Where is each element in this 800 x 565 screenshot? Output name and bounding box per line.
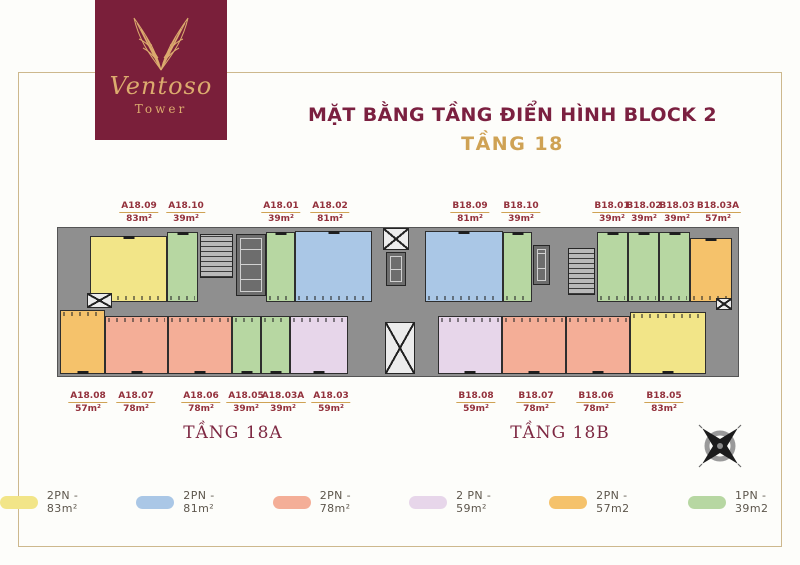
floor-title: TẦNG 18 (290, 133, 735, 155)
elevator-bank-left-icon (236, 234, 266, 296)
unit-code: A18.10 (166, 201, 205, 213)
unit-area: 59m² (311, 404, 350, 414)
unit-code: A18.08 (68, 391, 107, 403)
legend-swatch-salmon (273, 496, 311, 509)
legend-swatch-orange (549, 496, 587, 509)
unit-area: 39m² (657, 214, 696, 224)
legend-label: 2 PN - 59m² (456, 489, 522, 515)
unit-code: B18.07 (516, 391, 555, 403)
floor-plan (58, 226, 738, 378)
unit-label-B18.07: B18.0778m² (516, 383, 555, 414)
unit-code: A18.03A (260, 391, 306, 403)
top-unit-labels: A18.0983m²A18.1039m²A18.0139m²A18.0281m²… (0, 193, 800, 223)
unit-area: 59m² (456, 404, 495, 414)
unit-label-A18.03: A18.0359m² (311, 383, 350, 414)
legend-item-blue: 2PN - 81m² (136, 489, 245, 515)
legend-swatch-blue (136, 496, 174, 509)
unit-label-B18.03A: B18.03A57m² (695, 193, 741, 224)
unit-label-B18.08: B18.0859m² (456, 383, 495, 414)
unit-B18.03 (659, 232, 690, 302)
legend-label: 1PN - 39m2 (735, 489, 800, 515)
unit-area: 78m² (116, 404, 155, 414)
section-label-18b: TẦNG 18B (510, 423, 610, 443)
unit-area: 57m² (68, 404, 107, 414)
unit-label-B18.03: B18.0339m² (657, 193, 696, 224)
unit-A18.01 (266, 232, 295, 302)
unit-B18.07 (502, 316, 566, 374)
unit-code: B18.08 (456, 391, 495, 403)
page-title: MẶT BẰNG TẦNG ĐIỂN HÌNH BLOCK 2 (290, 104, 735, 126)
legend-swatch-yellow (0, 496, 38, 509)
unit-label-B18.06: B18.0678m² (576, 383, 615, 414)
legend-item-salmon: 2PN - 78m² (273, 489, 382, 515)
unit-area: 83m² (119, 214, 158, 224)
stairwell-right-icon (568, 248, 595, 295)
shaft-mid-top-icon (383, 228, 409, 250)
brand-subtitle: Tower (135, 102, 187, 116)
brand-name: Ventoso (110, 74, 213, 98)
legend-item-green: 1PN - 39m2 (688, 489, 800, 515)
unit-area: 39m² (260, 404, 306, 414)
unit-A18.08 (60, 310, 105, 374)
unit-code: A18.03 (311, 391, 350, 403)
compass-icon (690, 416, 750, 476)
title-block: MẶT BẰNG TẦNG ĐIỂN HÌNH BLOCK 2 TẦNG 18 (290, 104, 735, 155)
unit-area: 39m² (261, 214, 300, 224)
wings-icon (119, 12, 203, 72)
page: { "logo": { "brand": "Ventoso", "sub": "… (0, 0, 800, 565)
unit-label-A18.07: A18.0778m² (116, 383, 155, 414)
unit-code: A18.09 (119, 201, 158, 213)
unit-A18.05 (232, 316, 261, 374)
legend-label: 2PN - 83m² (47, 489, 109, 515)
legend-label: 2PN - 57m2 (596, 489, 661, 515)
shaft-left-icon (87, 293, 112, 308)
unit-code: A18.07 (116, 391, 155, 403)
legend-label: 2PN - 81m² (183, 489, 245, 515)
bottom-unit-labels: A18.0857m²A18.0778m²A18.0678m²A18.0539m²… (0, 383, 800, 413)
legend-swatch-green (688, 496, 726, 509)
legend-item-yellow: 2PN - 83m² (0, 489, 109, 515)
shaft-right-icon (716, 298, 732, 310)
unit-label-A18.09: A18.0983m² (119, 193, 158, 224)
unit-code: B18.06 (576, 391, 615, 403)
unit-code: A18.06 (181, 391, 220, 403)
unit-B18.09 (425, 231, 503, 302)
legend: 2PN - 83m²2PN - 81m²2PN - 78m²2 PN - 59m… (0, 489, 800, 515)
unit-area: 83m² (644, 404, 683, 414)
unit-A18.06 (168, 316, 232, 374)
unit-area: 39m² (166, 214, 205, 224)
legend-label: 2PN - 78m² (320, 489, 382, 515)
unit-area: 78m² (181, 404, 220, 414)
unit-A18.02 (295, 231, 372, 302)
unit-code: B18.09 (450, 201, 489, 213)
unit-A18.03 (290, 316, 348, 374)
unit-code: B18.03 (657, 201, 696, 213)
unit-label-B18.05: B18.0583m² (644, 383, 683, 414)
brand-logo: Ventoso Tower (95, 0, 227, 140)
unit-B18.10 (503, 232, 532, 302)
unit-A18.10 (167, 232, 198, 302)
unit-A18.07 (105, 316, 168, 374)
unit-B18.08 (438, 316, 502, 374)
section-label-18a: TẦNG 18A (183, 423, 282, 443)
unit-label-B18.09: B18.0981m² (450, 193, 489, 224)
legend-item-orange: 2PN - 57m2 (549, 489, 661, 515)
stairwell-left-icon (200, 234, 233, 278)
unit-label-A18.06: A18.0678m² (181, 383, 220, 414)
unit-area: 78m² (576, 404, 615, 414)
unit-area: 78m² (516, 404, 555, 414)
unit-code: B18.10 (501, 201, 540, 213)
unit-B18.05 (630, 312, 706, 374)
unit-code: B18.03A (695, 201, 741, 213)
legend-item-purple: 2 PN - 59m² (409, 489, 522, 515)
unit-label-B18.10: B18.1039m² (501, 193, 540, 224)
unit-B18.06 (566, 316, 630, 374)
elevator-bank-right-icon (533, 245, 550, 285)
unit-label-A18.03A: A18.03A39m² (260, 383, 306, 414)
unit-code: A18.01 (261, 201, 300, 213)
unit-B18.03A (690, 238, 732, 302)
unit-area: 57m² (695, 214, 741, 224)
unit-label-A18.10: A18.1039m² (166, 193, 205, 224)
unit-code: B18.05 (644, 391, 683, 403)
unit-area: 81m² (310, 214, 349, 224)
unit-area: 81m² (450, 214, 489, 224)
unit-B18.02 (628, 232, 659, 302)
legend-swatch-purple (409, 496, 447, 509)
unit-code: A18.02 (310, 201, 349, 213)
shaft-mid-bottom-icon (385, 322, 415, 374)
unit-label-A18.08: A18.0857m² (68, 383, 107, 414)
unit-label-A18.02: A18.0281m² (310, 193, 349, 224)
elevator-bank-mid-icon (386, 252, 406, 286)
unit-area: 39m² (501, 214, 540, 224)
unit-B18.01 (597, 232, 628, 302)
unit-A18.03A (261, 316, 290, 374)
unit-label-A18.01: A18.0139m² (261, 193, 300, 224)
